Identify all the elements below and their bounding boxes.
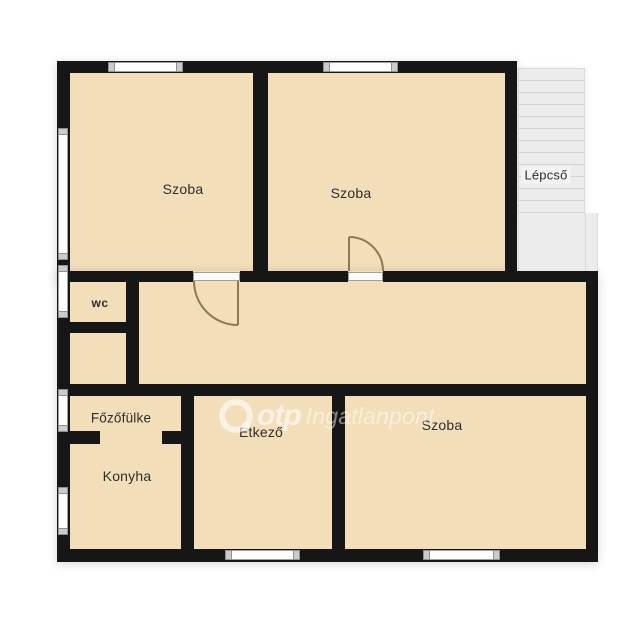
wall-outer-bottom <box>57 549 598 562</box>
room-label-wc: wc <box>91 296 108 310</box>
wall-mid-horizontal-seg2 <box>240 271 348 282</box>
room-szoba-top-left <box>70 73 253 271</box>
door-threshold-szoba-top-left <box>193 272 240 281</box>
room-label-szoba-top-left: Szoba <box>163 181 204 197</box>
watermark-name: Ingatlanpont <box>306 403 435 430</box>
window-left-wc <box>58 265 68 318</box>
window-left-fozofulke <box>58 389 68 432</box>
window-bottom-etkezo <box>225 550 300 560</box>
floorplan-canvas: Szoba Szoba Lépcső wc Főzőfülke Konyha É… <box>0 0 640 632</box>
watermark-brand: otp <box>257 399 301 433</box>
door-threshold-szoba-top-middle <box>348 272 383 281</box>
wall-mid-horizontal-seg1 <box>57 271 193 282</box>
watermark: otp Ingatlanpont <box>219 399 435 433</box>
room-label-fozofulke: Főzőfülke <box>91 411 151 426</box>
wall-kitchen-stub-left <box>70 431 100 444</box>
window-bottom-szoba <box>423 550 500 560</box>
window-left-szoba <box>58 128 68 260</box>
wall-konyha-etkezo <box>181 384 194 562</box>
wall-divider-top-rooms <box>253 73 268 271</box>
wall-outer-right-upper <box>505 61 517 282</box>
room-szoba-top-middle <box>268 73 505 271</box>
window-top-left <box>108 62 183 72</box>
otp-logo-icon <box>219 399 253 433</box>
wall-outer-right-lower <box>586 271 598 562</box>
wall-wc-right <box>126 271 139 396</box>
room-label-lepcso: Lépcső <box>521 167 570 184</box>
room-pantry <box>70 333 126 384</box>
room-label-konyha: Konyha <box>103 468 152 484</box>
window-top-middle <box>323 62 398 72</box>
room-label-szoba-top-middle: Szoba <box>331 185 372 201</box>
window-left-konyha <box>58 487 68 535</box>
room-hallway <box>139 282 586 384</box>
room-konyha <box>70 444 181 549</box>
